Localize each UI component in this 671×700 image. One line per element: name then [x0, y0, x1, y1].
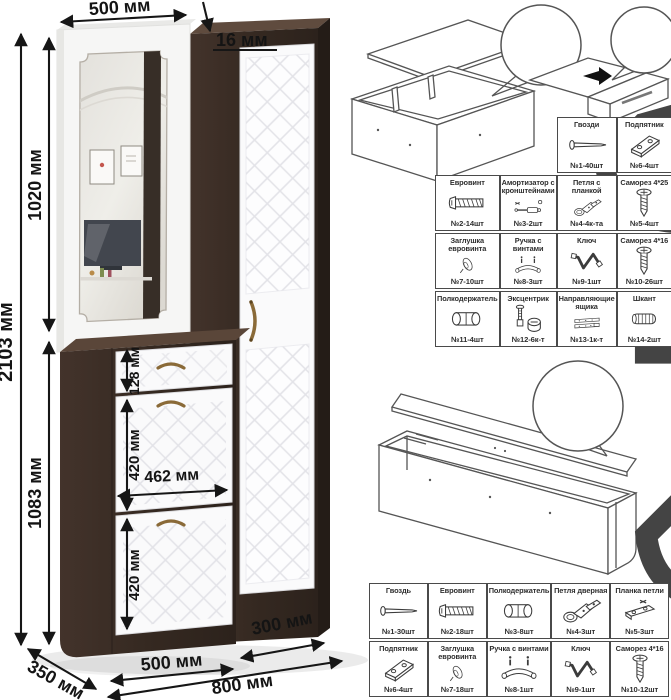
- hardware-table-lower-kit: Гвоздь №1-30шт Евровинт №2-18шт Полкодер…: [369, 583, 669, 697]
- part-count: №5-4шт: [630, 219, 659, 228]
- hardware-part-gaslift: Амортизатор с кронштейнами №3-2шт: [500, 175, 557, 231]
- footplate-icon: [376, 653, 420, 685]
- part-name: Направляющие ящика: [559, 295, 615, 312]
- part-name: Заглушка евровинта: [430, 645, 485, 662]
- part-name: Евровинт: [440, 587, 475, 596]
- table-spacer: [500, 117, 557, 173]
- part-name: Амортизатор с кронштейнами: [502, 179, 555, 196]
- part-name: Шкант: [633, 295, 656, 304]
- part-count: №3-2шт: [514, 219, 543, 228]
- part-count: №12-6к-т: [512, 335, 545, 344]
- part-name: Петля с планкой: [559, 179, 615, 196]
- part-count: №8-3шт: [514, 277, 543, 286]
- shelf-pin-icon: [445, 303, 489, 335]
- dim-upper-door-height-label: 420 мм: [126, 429, 143, 480]
- part-count: №2-14шт: [451, 219, 484, 228]
- hardware-part-screw-4x25: Саморез 4*25 №5-4шт: [617, 175, 671, 231]
- screw-icon: [622, 245, 666, 277]
- drawer-slides-icon: [565, 312, 609, 335]
- screw-icon: [618, 653, 662, 685]
- screw-cap-icon: [435, 662, 479, 685]
- part-name: Ручка с винтами: [489, 645, 548, 654]
- furniture-illustration: [32, 18, 368, 676]
- part-count: №6-4шт: [630, 161, 659, 170]
- shoe-cabinet: [60, 328, 250, 657]
- part-count: №14-2шт: [628, 335, 661, 344]
- hardware-part-screw-4x16: Саморез 4*16 №10-26шт: [617, 233, 671, 289]
- dim-lower-door-height-label: 420 мм: [126, 549, 143, 600]
- hardware-part-shelf-pin: Полкодержатель №11-4шт: [435, 291, 500, 347]
- part-count: №2-18шт: [441, 627, 474, 636]
- part-count: №7-10шт: [451, 277, 484, 286]
- hardware-part-shelf-pin: Полкодержатель №3-8шт: [487, 583, 552, 639]
- hardware-part-handle: Ручка с винтами №8-3шт: [500, 233, 557, 289]
- part-count: №4-4к-та: [570, 219, 603, 228]
- hardware-part-key: Ключ №9-1шт: [557, 233, 617, 289]
- part-name: Ключ: [577, 237, 596, 246]
- hardware-part-nails: Гвозди №1-40шт: [557, 117, 617, 173]
- dim-mirror-height-label: 1020 мм: [25, 149, 45, 221]
- dim-lower-height-label: 1083 мм: [25, 457, 45, 529]
- door-hinge-icon: [559, 595, 603, 627]
- screw-icon: [622, 187, 666, 219]
- part-name: Гвоздь: [386, 587, 411, 596]
- part-count: №13-1к-т: [570, 335, 603, 344]
- part-count: №7-18шт: [441, 685, 474, 694]
- part-count: №8-1шт: [505, 685, 534, 694]
- part-name: Гвозди: [574, 121, 599, 130]
- hardware-table-upper-kit: Гвозди №1-40шт Подпятник №6-4шт Евровинт…: [435, 117, 671, 347]
- part-name: Заглушка евровинта: [437, 237, 498, 254]
- key-icon: [565, 245, 609, 277]
- part-count: №5-3шт: [625, 627, 654, 636]
- hardware-part-dowel: Шкант №14-2шт: [617, 291, 671, 347]
- dowel-icon: [622, 303, 666, 335]
- dim-panel-thickness-label: 16 мм: [216, 30, 268, 50]
- hardware-part-hinge-plate: Планка петли №5-3шт: [610, 583, 669, 639]
- hardware-part-confirmat: Евровинт №2-14шт: [435, 175, 500, 231]
- mirror-panel: [57, 19, 196, 352]
- hardware-part-key: Ключ №9-1шт: [551, 641, 610, 697]
- part-name: Планка петли: [615, 587, 663, 596]
- hardware-part-screw-cap: Заглушка евровинта №7-18шт: [428, 641, 487, 697]
- key-icon: [559, 653, 603, 685]
- table-spacer: [435, 117, 500, 173]
- part-name: Полкодержатель: [437, 295, 498, 304]
- part-name: Подпятник: [625, 121, 664, 130]
- part-name: Саморез 4*16: [616, 645, 664, 654]
- handle-icon: [497, 653, 541, 685]
- part-name: Саморез 4*16: [620, 237, 668, 246]
- part-name: Саморез 4*25: [620, 179, 668, 188]
- hardware-part-drawer-slides: Направляющие ящика №13-1к-т: [557, 291, 617, 347]
- part-name: Эксцентрик: [507, 295, 548, 304]
- hinge-plate-icon: [618, 595, 662, 627]
- part-name: Петля дверная: [554, 587, 607, 596]
- gaslift-icon: [506, 196, 550, 219]
- dim-total-height-label: 2103 мм: [0, 302, 17, 382]
- nail-icon: [376, 595, 420, 627]
- part-name: Ключ: [571, 645, 590, 654]
- screw-cap-icon: [445, 254, 489, 277]
- part-count: №1-30шт: [382, 627, 415, 636]
- part-count: №4-3шт: [566, 627, 595, 636]
- cam-lock-icon: [506, 303, 550, 335]
- nail-icon: [565, 129, 609, 161]
- hardware-part-screw-cap: Заглушка евровинта №7-10шт: [435, 233, 500, 289]
- part-count: №6-4шт: [384, 685, 413, 694]
- hinge-icon: [565, 196, 609, 219]
- assembly-sheet: 500 мм 16 мм 2103 мм 1020 мм 1083 мм 128…: [0, 0, 671, 700]
- part-count: №10-12шт: [621, 685, 658, 694]
- hardware-part-handle: Ручка с винтами №8-1шт: [487, 641, 552, 697]
- shelf-pin-icon: [497, 595, 541, 627]
- part-count: №10-26шт: [626, 277, 663, 286]
- footplate-icon: [622, 129, 666, 161]
- hardware-part-footplate: Подпятник №6-4шт: [369, 641, 428, 697]
- part-count: №3-8шт: [505, 627, 534, 636]
- dim-drawer-height-label: 128 мм: [126, 347, 142, 395]
- dim-inner-width-label: 462 мм: [144, 467, 200, 487]
- part-name: Подпятник: [379, 645, 418, 654]
- hardware-part-cam-lock: Эксцентрик №12-6к-т: [500, 291, 557, 347]
- dim-top-width-label: 500 мм: [88, 0, 151, 19]
- hardware-part-screw-4x16: Саморез 4*16 №10-12шт: [610, 641, 669, 697]
- hardware-part-nail: Гвоздь №1-30шт: [369, 583, 428, 639]
- part-name: Ручка с винтами: [502, 237, 555, 254]
- hardware-part-confirmat: Евровинт №2-18шт: [428, 583, 487, 639]
- confirmat-icon: [435, 595, 479, 627]
- part-count: №11-4шт: [451, 335, 484, 344]
- handle-icon: [506, 254, 550, 277]
- hardware-part-footplate: Подпятник №6-4шт: [617, 117, 671, 173]
- part-name: Евровинт: [450, 179, 485, 188]
- part-name: Полкодержатель: [489, 587, 550, 596]
- part-count: №9-1шт: [566, 685, 595, 694]
- part-count: №9-1шт: [572, 277, 601, 286]
- part-count: №1-40шт: [570, 161, 603, 170]
- hardware-part-door-hinge: Петля дверная №4-3шт: [551, 583, 610, 639]
- confirmat-icon: [445, 187, 489, 219]
- hardware-part-hinge-with-plate: Петля с планкой №4-4к-та: [557, 175, 617, 231]
